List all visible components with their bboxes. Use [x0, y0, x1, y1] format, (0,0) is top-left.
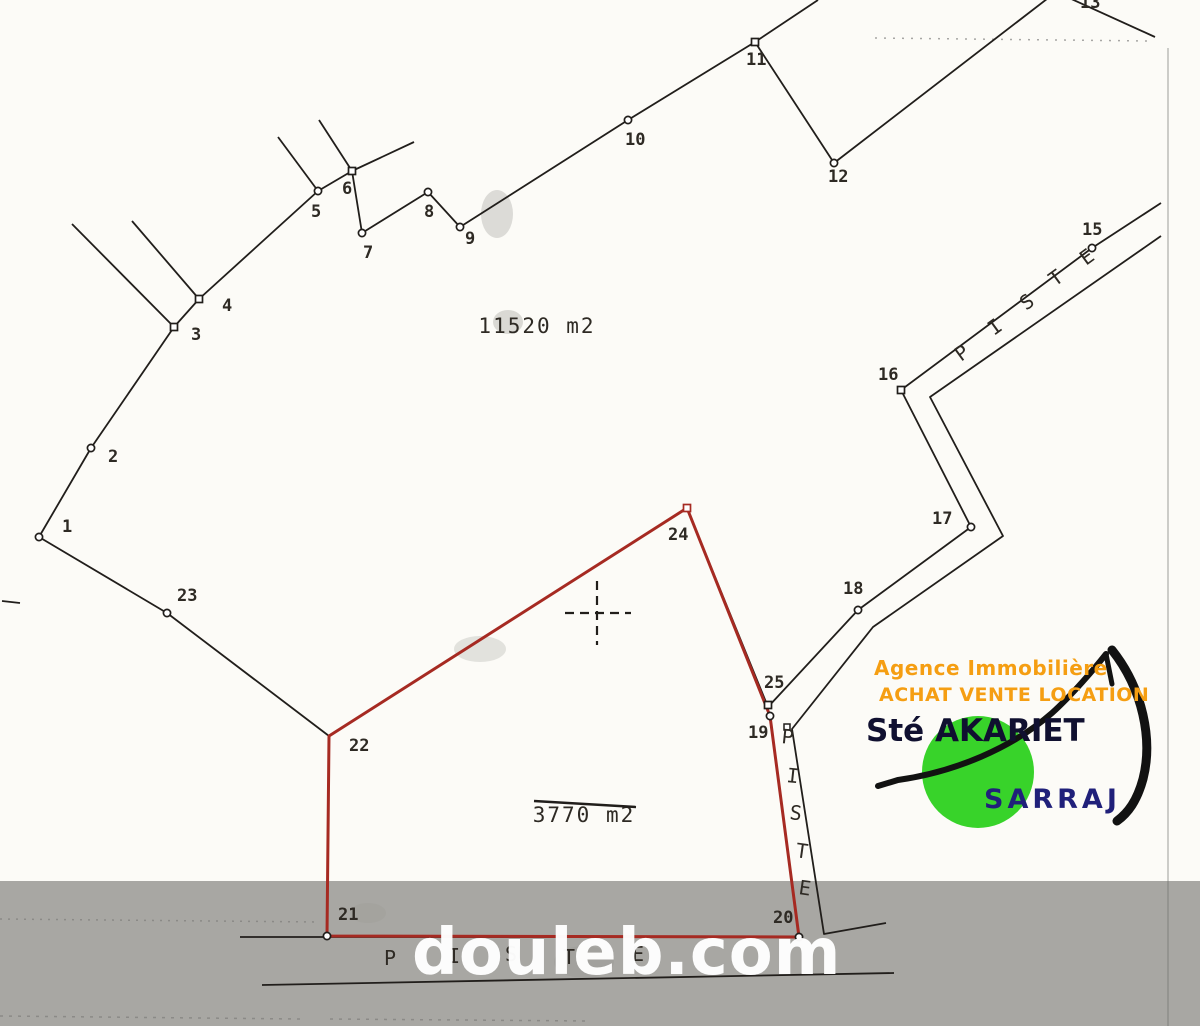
parcel-boundary-line — [72, 224, 174, 327]
parcel-boundary-line — [2, 601, 20, 603]
piste-road-letter: P — [950, 340, 974, 366]
point-label-18: 18 — [843, 579, 863, 599]
point-label-15: 15 — [1082, 220, 1102, 240]
piste-road-letter: P — [384, 946, 396, 970]
point-marker-24 — [684, 505, 691, 512]
point-marker-25 — [765, 702, 772, 709]
area-label: 11520 m2 — [478, 314, 595, 338]
point-label-2: 2 — [108, 447, 118, 467]
point-label-21: 21 — [338, 905, 358, 925]
parcel-boundary-line — [352, 0, 818, 233]
logo-agency-type-text: Agence Immobilière — [874, 658, 1108, 678]
point-marker-12 — [830, 159, 837, 166]
logo-owner-name: SARRAJ — [984, 786, 1121, 813]
piste-road-letter: I — [983, 314, 1007, 340]
faint-scan-line — [875, 38, 1150, 41]
piste-road-letter: I — [785, 763, 799, 788]
point-label-7: 7 — [363, 243, 373, 263]
parcel-boundary-line — [39, 171, 352, 537]
point-marker-21 — [323, 932, 330, 939]
point-marker-10 — [624, 116, 631, 123]
point-label-19: 19 — [748, 723, 768, 743]
point-label-24: 24 — [668, 525, 688, 545]
point-marker-16 — [898, 387, 905, 394]
point-marker-17 — [967, 523, 974, 530]
piste-road-letter: S — [1015, 289, 1039, 315]
point-marker-1 — [35, 533, 42, 540]
logo-company-name: Sté AKARIET — [866, 716, 1085, 747]
point-marker-9 — [456, 223, 463, 230]
point-marker-8 — [424, 188, 431, 195]
piste-road-letter: P — [780, 724, 794, 749]
piste-road-letter: T — [794, 838, 809, 863]
point-label-10: 10 — [625, 130, 645, 150]
point-marker-3 — [171, 324, 178, 331]
point-label-17: 17 — [932, 509, 952, 529]
parcel-boundary-line — [132, 221, 199, 299]
point-label-8: 8 — [424, 202, 434, 222]
logo-services-text: ACHAT VENTE LOCATION — [879, 686, 1149, 705]
point-label-3: 3 — [191, 325, 201, 345]
survey-plan-drawing: 1234567891011121315161718192021222324251… — [0, 0, 1200, 1026]
point-label-5: 5 — [311, 202, 321, 222]
point-label-23: 23 — [177, 586, 197, 606]
point-marker-6 — [349, 168, 356, 175]
point-marker-23 — [163, 609, 170, 616]
point-marker-19 — [766, 712, 773, 719]
point-label-22: 22 — [349, 736, 369, 756]
point-marker-5 — [314, 187, 321, 194]
point-label-9: 9 — [465, 229, 475, 249]
point-label-13: 13 — [1080, 0, 1100, 13]
parcel-boundary-line — [278, 137, 318, 191]
point-label-4: 4 — [222, 296, 232, 316]
watermark-text: douleb.com — [412, 916, 841, 990]
point-label-16: 16 — [878, 365, 898, 385]
point-label-11: 11 — [746, 50, 766, 70]
piste-road-letter: S — [788, 800, 803, 825]
point-label-1: 1 — [62, 517, 72, 537]
red-parcel-outline — [327, 508, 799, 937]
point-marker-18 — [854, 606, 861, 613]
parcel-boundary-line — [768, 203, 1161, 707]
parcel-boundary-line — [755, 0, 1155, 163]
scanned-survey-plan-page: 1234567891011121315161718192021222324251… — [0, 0, 1200, 1026]
point-label-25: 25 — [764, 673, 784, 693]
point-marker-2 — [87, 444, 94, 451]
parcel-boundary-line — [319, 120, 352, 171]
point-label-6: 6 — [342, 179, 352, 199]
point-marker-4 — [196, 296, 203, 303]
point-marker-7 — [358, 229, 365, 236]
parcel-boundary-line — [39, 537, 329, 736]
point-label-12: 12 — [828, 167, 848, 187]
parcel-boundary-line — [352, 142, 414, 171]
point-marker-11 — [752, 39, 759, 46]
